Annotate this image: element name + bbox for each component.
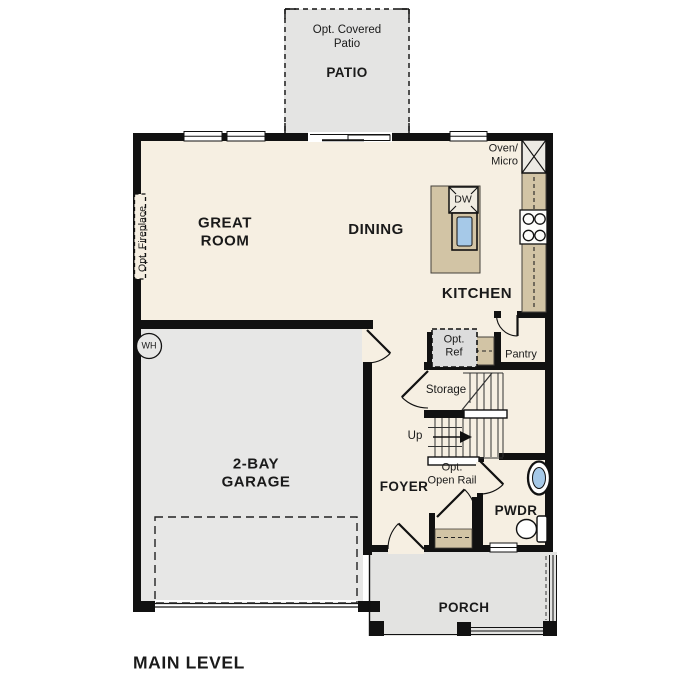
page-title: MAIN LEVEL <box>133 652 245 673</box>
garage-label: 2-BAY GARAGE <box>222 456 291 493</box>
dining-label: DINING <box>348 221 404 239</box>
pwdr-window <box>490 543 517 552</box>
patio-label: PATIO <box>326 65 367 81</box>
closet-floor <box>435 529 472 548</box>
island-sink-icon <box>452 213 477 250</box>
wh-label: WH <box>142 341 157 352</box>
porch-label: PORCH <box>439 600 490 616</box>
porch-post <box>457 622 471 636</box>
opt-ref-label: Opt. Ref <box>444 334 465 361</box>
great-room-label: GREAT ROOM <box>198 215 252 252</box>
oven-micro-icon <box>522 140 546 173</box>
foyer-label: FOYER <box>380 479 429 495</box>
dw-label: DW <box>454 194 472 207</box>
cooktop-icon <box>520 210 547 244</box>
patio-note-label: Opt. Covered Patio <box>313 23 381 51</box>
garage-door-opening <box>155 600 358 613</box>
up-label: Up <box>408 429 423 443</box>
pwdr-label: PWDR <box>495 503 538 519</box>
oven-micro-label: Oven/ Micro <box>489 143 518 170</box>
pantry-label: Pantry <box>505 348 537 361</box>
porch-post <box>370 621 384 636</box>
opt-open-rail-label: Opt. Open Rail <box>428 462 477 489</box>
patio-slider-door <box>308 132 392 142</box>
porch-post <box>543 621 557 636</box>
stair-rail <box>464 410 507 418</box>
opt-fireplace-label: Opt. Fireplace <box>137 206 150 272</box>
kitchen-label: KITCHEN <box>442 285 512 303</box>
floor-plan: Opt. Covered Patio PATIO GREAT ROOM DINI… <box>0 0 687 687</box>
storage-label: Storage <box>426 383 466 397</box>
floorplan-drawing <box>0 0 687 687</box>
